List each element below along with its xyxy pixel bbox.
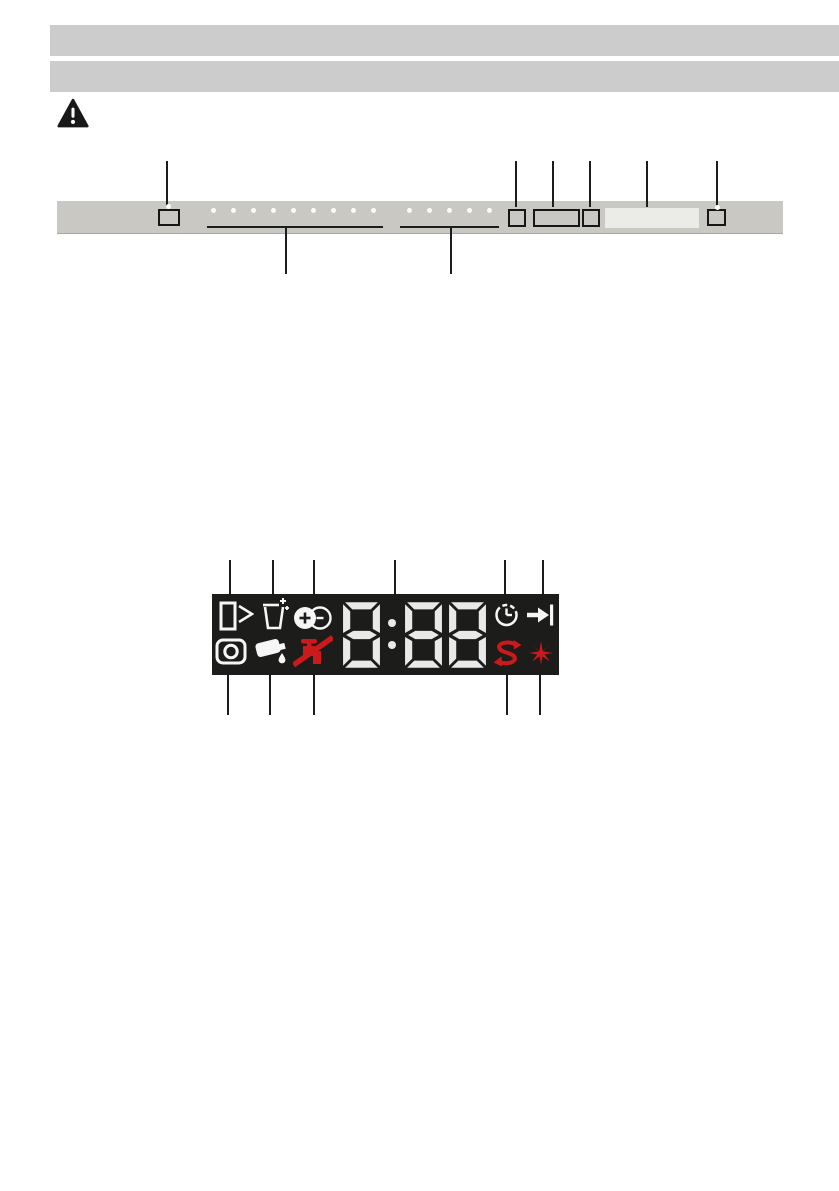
seven-segment-digit: [447, 600, 488, 670]
seven-segment-digit: [341, 600, 382, 670]
section-header-bar: [50, 61, 839, 92]
callout-line: [313, 560, 315, 598]
callout-line: [269, 672, 271, 715]
seven-segment-digit: [403, 600, 444, 670]
warning-triangle-icon: [57, 96, 89, 131]
panel-end-button-outline: [707, 209, 726, 226]
callout-line: [504, 560, 506, 598]
seven-segment-display: [212, 594, 559, 675]
callout-line: [229, 560, 231, 598]
callout-line: [272, 560, 274, 598]
callout-line: [394, 560, 396, 598]
colon-dot: [388, 641, 396, 649]
callout-line: [227, 672, 229, 715]
callout-line: [313, 672, 315, 715]
callout-line: [542, 560, 544, 598]
panel-display-window: [605, 208, 699, 228]
callout-line: [285, 228, 287, 274]
callout-line: [450, 228, 452, 274]
callout-line: [539, 672, 541, 715]
display-panel: [212, 594, 559, 675]
panel-button-outline: [508, 209, 526, 227]
colon-dot: [388, 619, 396, 627]
callout-line: [506, 672, 508, 715]
manual-page: [0, 0, 839, 1191]
panel-button-outline: [582, 209, 600, 227]
panel-wide-button-outline: [533, 209, 580, 227]
section-header-bar: [50, 25, 839, 56]
on-off-button-outline: [158, 209, 180, 226]
